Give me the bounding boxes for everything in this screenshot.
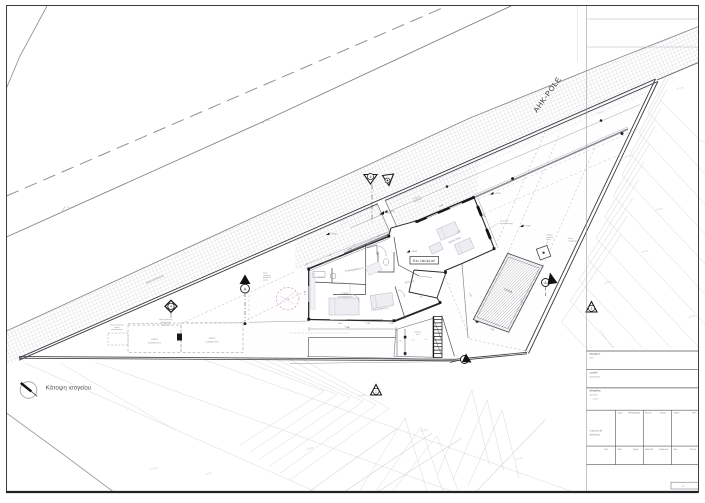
svg-text:οχημάτων: οχημάτων <box>161 324 170 327</box>
svg-text:ΥΠΝΟΔΩΜΑΤΙΟ: ΥΠΝΟΔΩΜΑΤΙΟ <box>337 296 353 299</box>
svg-text:4: 4 <box>170 305 172 309</box>
svg-text:ΚΥΡΙΟΣ: ΚΥΡΙΟΣ <box>341 292 349 295</box>
svg-text:+78.00: +78.00 <box>524 225 531 228</box>
svg-text:ξύλο: ξύλο <box>416 333 420 336</box>
svg-text:CODE: CODE <box>674 412 680 415</box>
svg-text:νερού: νερού <box>546 238 551 241</box>
svg-text:SIZE: SIZE <box>618 448 623 451</box>
svg-text:APPROVAL: APPROVAL <box>590 433 602 436</box>
svg-text:CHKD: CHKD <box>660 412 666 415</box>
svg-text:CHAD: CHAD <box>633 448 639 451</box>
svg-text:DESPOINA: DESPOINA <box>590 375 601 378</box>
svg-text:ΧΩΡΟΣ: ΧΩΡΟΣ <box>209 337 217 340</box>
svg-text:χώρος: χώρος <box>263 278 268 281</box>
svg-text:σημείο παροχής: σημείο παροχής <box>500 222 513 225</box>
svg-text:DATE: DATE <box>618 412 624 415</box>
svg-text:+78.00: +78.00 <box>494 192 501 195</box>
svg-text:Ε1= 100.34 m²: Ε1= 100.34 m² <box>413 259 436 263</box>
svg-text:Θέση φόρτισης: Θέση φόρτισης <box>159 318 172 321</box>
svg-text:+78.00: +78.00 <box>411 250 418 253</box>
svg-text:ATRMHXN: ATRMHXN <box>659 448 669 451</box>
svg-text:PERFORMED: PERFORMED <box>628 412 641 415</box>
svg-text:περίφραξης: περίφραξης <box>568 239 577 242</box>
svg-text:DRAWING: DRAWING <box>590 390 601 393</box>
svg-text:απορριμμάτων: απορριμμάτων <box>111 328 123 331</box>
svg-text:SCALE: SCALE <box>645 412 652 415</box>
svg-text:78.4: 78.4 <box>267 119 271 122</box>
svg-text:WTC: WTC <box>590 357 595 360</box>
svg-text:ΔΙΑΔΡΟΜΟΣ: ΔΙΑΔΡΟΜΟΣ <box>333 282 345 285</box>
svg-text:ΣΤΑΘΜΕΥΣΗΣ: ΣΤΑΘΜΕΥΣΗΣ <box>205 341 219 344</box>
svg-text:WTC: WTC <box>604 448 609 451</box>
svg-text:ΚΑΤΟΨΗ: ΚΑΤΟΨΗ <box>590 394 599 397</box>
svg-text:CHECKED BY: CHECKED BY <box>590 430 604 433</box>
svg-text:+78.00: +78.00 <box>330 233 337 236</box>
svg-text:DWG NO: DWG NO <box>645 448 654 451</box>
svg-text:SCALE: SCALE <box>690 448 697 451</box>
svg-text:ΜΠΑΝΙΟ: ΜΠΑΝΙΟ <box>317 276 324 279</box>
svg-text:1:100: 1:100 <box>593 397 599 400</box>
svg-text:3: 3 <box>370 175 372 179</box>
svg-text:7.48: 7.48 <box>345 326 350 329</box>
svg-text:PROJECT: PROJECT <box>590 353 601 356</box>
svg-text:ΧΩΡΟΣ: ΧΩΡΟΣ <box>151 338 159 341</box>
svg-text:+78.00: +78.00 <box>388 210 395 213</box>
svg-text:CLIENT: CLIENT <box>590 372 599 375</box>
svg-text:78.1: 78.1 <box>67 206 71 209</box>
svg-text:A: A <box>244 287 247 291</box>
svg-text:ΣΤΑΘΜΕΥΣΗΣ: ΣΤΑΘΜΕΥΣΗΣ <box>148 342 162 345</box>
svg-text:Κάτοψη ισογείου: Κάτοψη ισογείου <box>46 385 92 392</box>
